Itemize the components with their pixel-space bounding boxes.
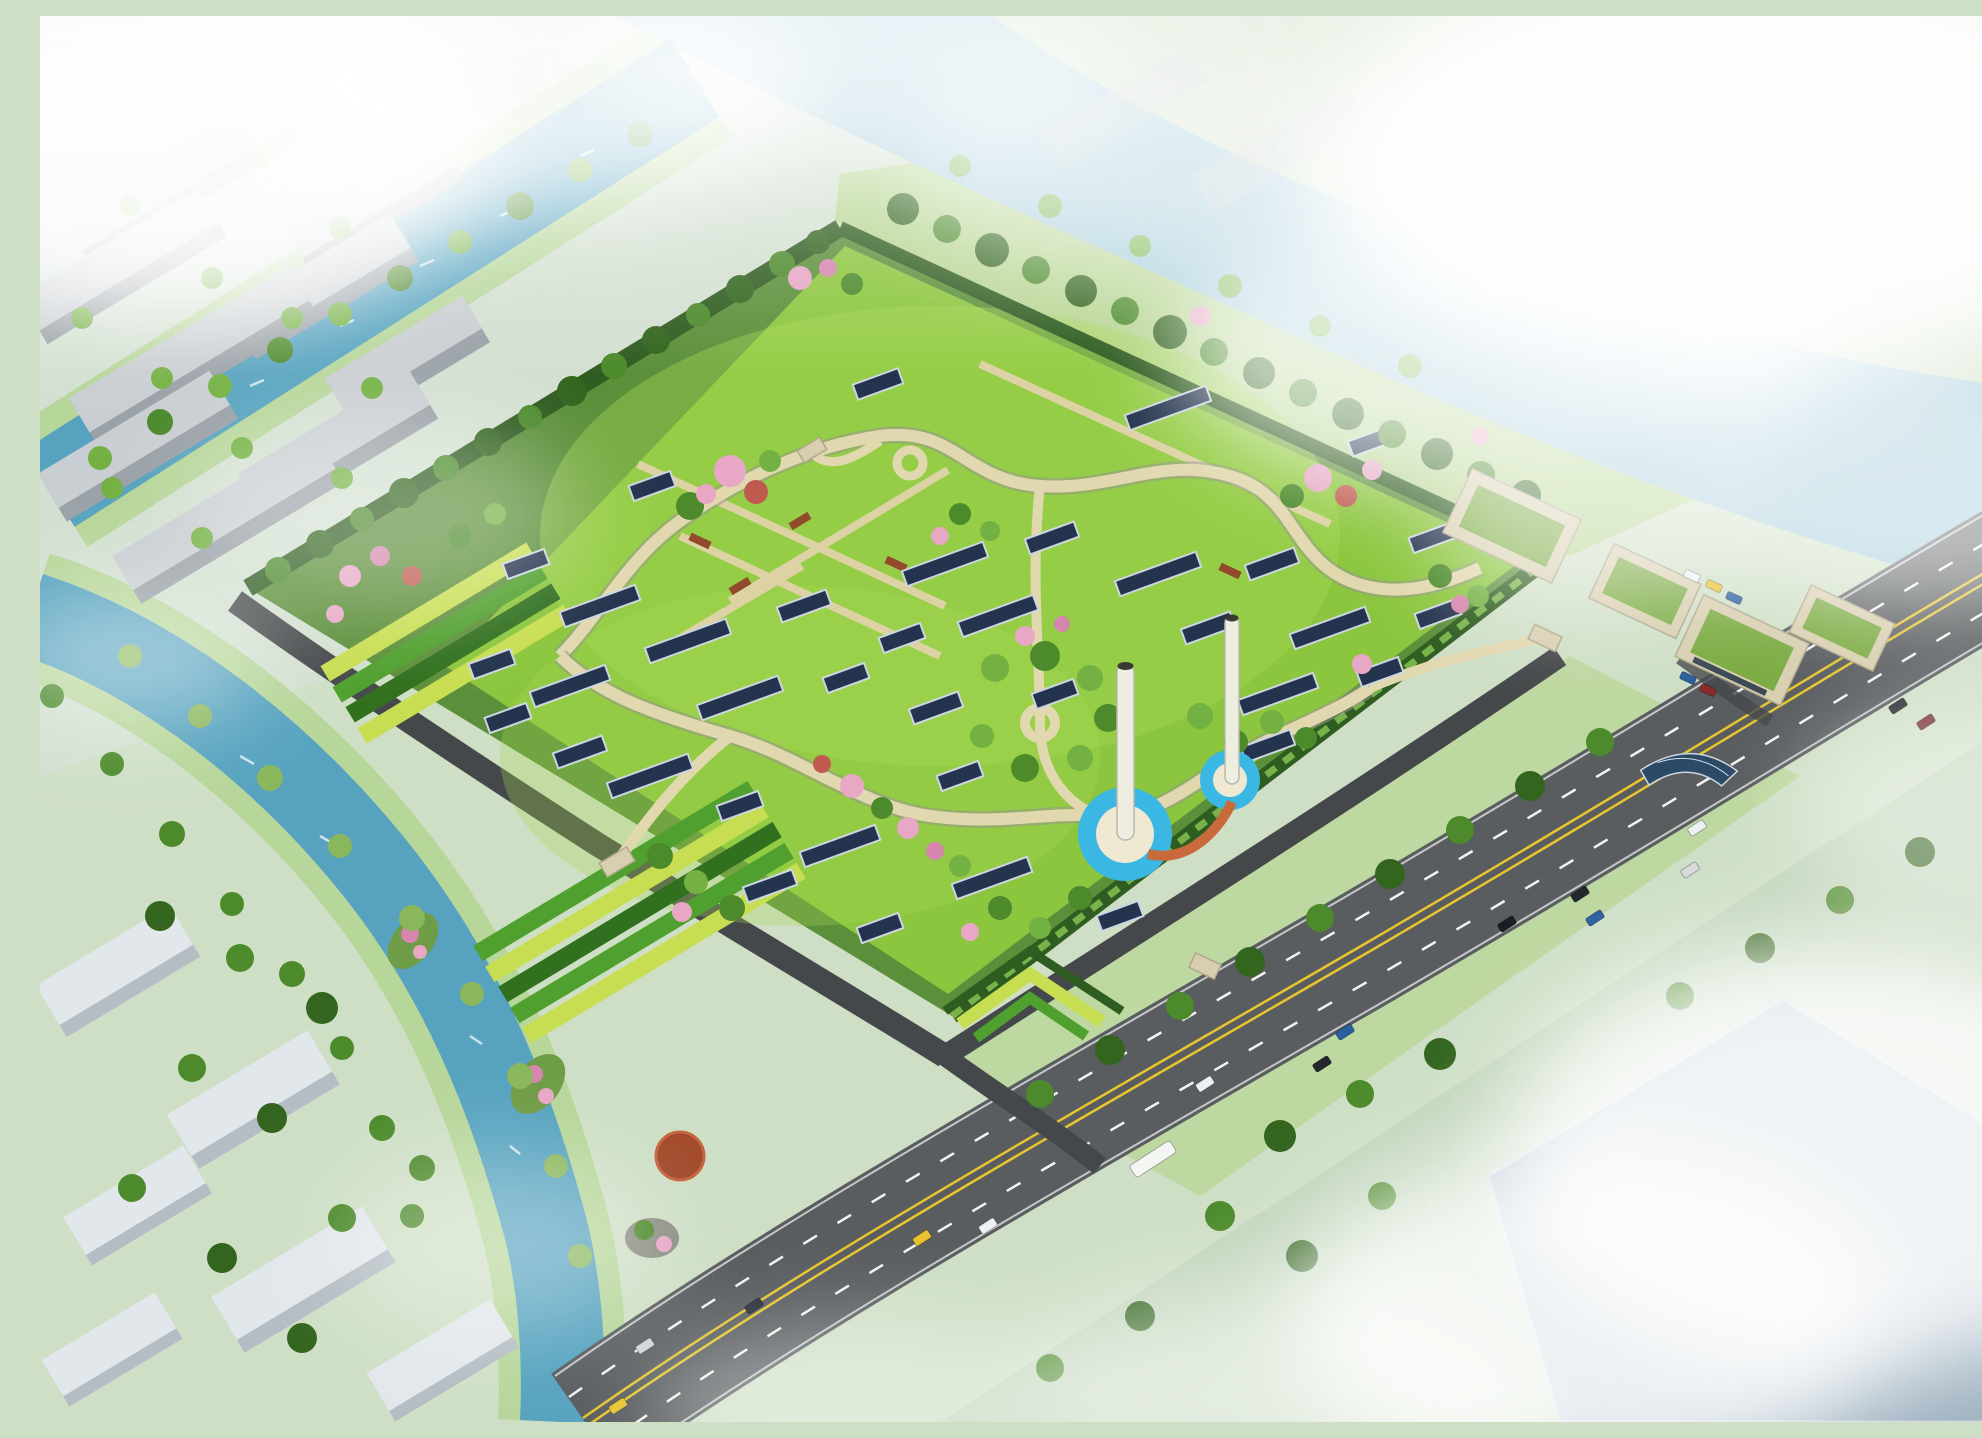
fog-cloud [1435,456,1735,616]
blossom-tree [1451,595,1469,613]
tree [1306,904,1334,932]
tree [100,752,124,776]
tree [1077,665,1103,691]
tree [647,843,673,869]
tree [719,895,745,921]
tree [369,1115,395,1141]
tree [1586,728,1614,756]
blossom-tree [1054,616,1070,632]
tree [684,870,708,894]
blossom-tree [672,902,692,922]
tree [207,1243,237,1273]
tree [981,654,1009,682]
red-tree [813,755,831,773]
tree [949,855,971,877]
red-tree [744,480,768,504]
tree [159,821,185,847]
tree [1068,886,1092,910]
tree [1029,917,1051,939]
tree [147,409,173,435]
tree [759,450,781,472]
aerial-rendering [40,16,1982,1422]
tree [1515,771,1545,801]
tree [220,892,244,916]
tree [1446,816,1474,844]
tree [988,896,1012,920]
tree [1030,641,1060,671]
blossom-tree [931,527,949,545]
tree [980,521,1000,541]
blossom-tree [961,923,979,941]
tree [178,1054,206,1082]
tree [1424,1038,1456,1070]
stack-tower [1117,664,1134,840]
stack-tower [1225,616,1239,784]
tree [1205,1201,1235,1231]
tree [1166,992,1194,1020]
tree [970,724,994,748]
tree [257,1103,287,1133]
tree [1187,703,1213,729]
tree [279,961,305,987]
tree [226,944,254,972]
tree [949,503,971,525]
blossom-tree [714,455,746,487]
blossom-tree [696,484,716,504]
blossom-tree [413,945,427,959]
tree [1235,947,1265,977]
tree [518,405,542,429]
tree [1095,1035,1125,1065]
tree [118,1174,146,1202]
tree [1067,745,1093,771]
tree [1011,754,1039,782]
tree [871,797,893,819]
fog-cloud [340,1156,660,1336]
tree [330,1036,354,1060]
tree [287,1323,317,1353]
tree [101,477,123,499]
tree [361,377,383,399]
tree [1346,1080,1374,1108]
blossom-tree [538,1088,554,1104]
tree [1375,859,1405,889]
tree [306,992,338,1024]
tree [1280,484,1304,508]
stack-top [1118,662,1134,670]
willow-tree [460,982,484,1006]
stack-top [1226,615,1239,622]
tree [208,374,232,398]
fog-cloud [180,416,580,616]
blossom-tree [1352,654,1372,674]
tree [145,901,175,931]
tree [88,446,112,470]
willow-tree [257,765,283,791]
blossom-tree [840,774,864,798]
blossom-tree [897,817,919,839]
red-tree [1335,485,1357,507]
blossom-tree [1015,626,1035,646]
willow-tree [507,1063,533,1089]
blossom-tree [926,842,944,860]
tree [1264,1120,1296,1152]
tree [1295,727,1317,749]
red-deck [656,1132,704,1180]
tree [1260,710,1284,734]
willow-tree [328,834,352,858]
tree [557,376,587,406]
willow-tree [399,905,425,931]
tree [1026,1080,1054,1108]
